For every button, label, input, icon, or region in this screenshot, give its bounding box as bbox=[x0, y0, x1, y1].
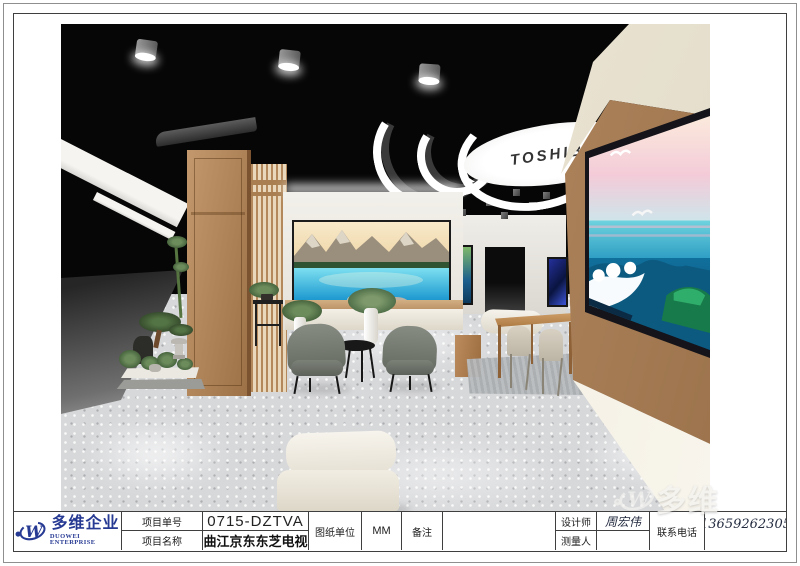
garden-bush bbox=[119, 350, 141, 368]
project-no-value: 0715-DZTVA bbox=[203, 512, 309, 531]
wood-slat-screen bbox=[251, 164, 287, 392]
background-tv-right bbox=[547, 257, 568, 307]
ceiling-cube-light bbox=[501, 212, 508, 219]
slat-rail bbox=[251, 180, 287, 185]
chair-leg bbox=[510, 354, 512, 388]
project-no-label: 项目单号 bbox=[122, 512, 203, 531]
floor-light-spot bbox=[81, 419, 231, 489]
armchair-leg bbox=[409, 376, 411, 390]
armchair-leg bbox=[309, 378, 311, 392]
stone-lantern-base bbox=[173, 355, 185, 359]
table-leg bbox=[531, 324, 533, 364]
chinese-eave-roof bbox=[155, 117, 258, 147]
cylinder-downlight bbox=[278, 49, 301, 68]
watermark-text: 多维 bbox=[656, 476, 720, 520]
bonsai-canopy bbox=[169, 324, 193, 336]
svg-text:W: W bbox=[627, 487, 652, 511]
armchair-right-seat bbox=[386, 360, 434, 375]
table-leg bbox=[498, 325, 501, 378]
remark-value bbox=[443, 512, 556, 550]
designer-label: 设计师 bbox=[556, 512, 597, 531]
duowei-watermark-mark: W bbox=[612, 478, 656, 518]
drawing-unit-value: MM bbox=[362, 512, 402, 550]
svg-text:W: W bbox=[25, 523, 44, 541]
armchair-left-seat bbox=[291, 360, 343, 376]
white-vase bbox=[364, 308, 378, 344]
plant-stand-shelf bbox=[255, 324, 281, 326]
slat-rail bbox=[251, 192, 287, 196]
bonsai-trunk bbox=[153, 330, 162, 349]
duowei-logo-mark: W bbox=[14, 516, 47, 546]
wall-rail bbox=[191, 212, 245, 215]
surveyor-value bbox=[597, 531, 650, 550]
showroom-render: TOSHIBA bbox=[61, 24, 710, 511]
company-name-en: DUOWEI ENTERPRISE bbox=[50, 534, 121, 547]
dining-chair bbox=[539, 329, 563, 361]
duowei-watermark: W 多维 bbox=[612, 470, 762, 526]
project-name-label: 项目名称 bbox=[122, 531, 203, 550]
chair-leg bbox=[542, 358, 544, 394]
doorway-opening bbox=[485, 247, 525, 312]
dining-chair bbox=[507, 326, 531, 356]
bamboo-leaves bbox=[167, 236, 187, 248]
remark-label: 备注 bbox=[402, 512, 443, 550]
coffee-table-leg bbox=[361, 350, 363, 382]
garden-stone bbox=[149, 364, 161, 372]
stone-lantern-body bbox=[175, 344, 183, 355]
zen-rock-garden bbox=[113, 302, 205, 396]
project-name-value: 曲江京东东芝电视 bbox=[203, 531, 309, 550]
chair-shadow bbox=[289, 384, 351, 394]
drawing-sheet: TOSHIBA bbox=[0, 0, 800, 566]
surveyor-label: 测量人 bbox=[556, 531, 597, 550]
company-name-cn: 多维企业 bbox=[51, 516, 119, 532]
ottoman-front-cushion bbox=[277, 470, 399, 511]
bamboo-leaves bbox=[173, 262, 189, 272]
company-logo: W 多维企业 DUOWEI ENTERPRISE bbox=[14, 512, 122, 550]
company-name: 多维企业 DUOWEI ENTERPRISE bbox=[50, 516, 121, 547]
drawing-unit-label: 图纸单位 bbox=[309, 512, 362, 550]
cylinder-downlight bbox=[418, 63, 440, 81]
cylinder-downlight bbox=[135, 39, 158, 59]
garden-bush bbox=[177, 358, 193, 370]
